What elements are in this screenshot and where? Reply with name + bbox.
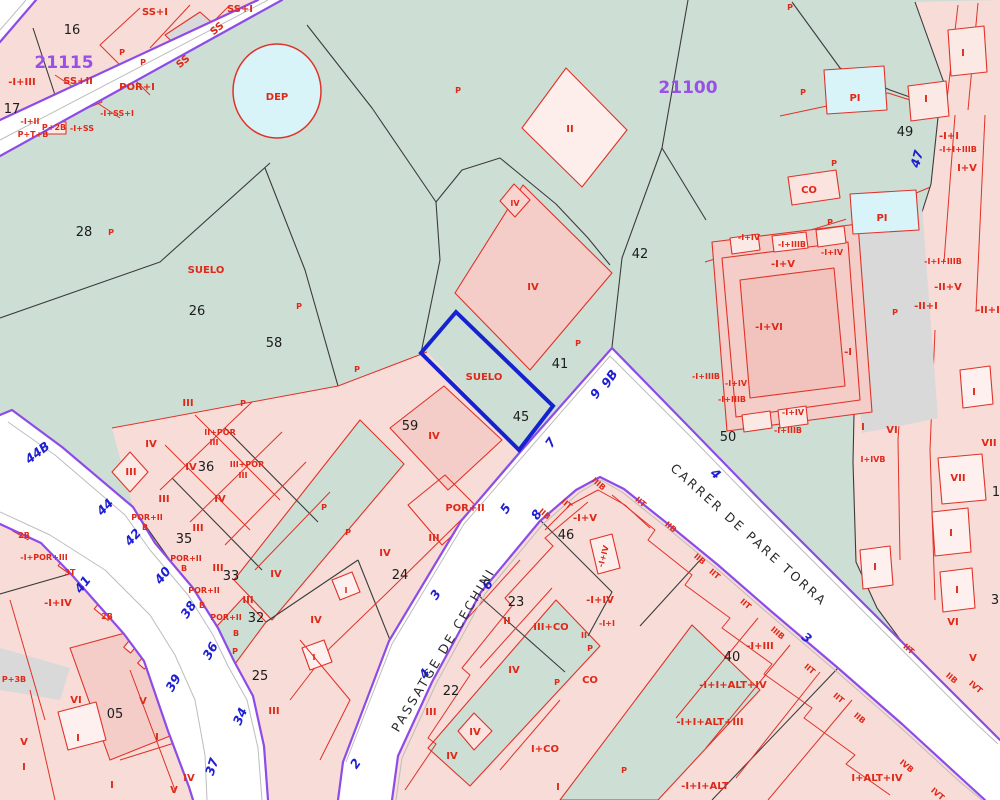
pool-2 (850, 190, 919, 234)
map-label: 28 (76, 225, 93, 240)
map-label: P (321, 503, 327, 512)
map-label: P (621, 766, 627, 775)
deposit-circle (233, 44, 321, 138)
map-label: VI (947, 617, 958, 628)
map-label: 3T (64, 568, 76, 577)
map-label: POR+II (210, 613, 242, 622)
map-label: POR+I (119, 82, 155, 93)
map-label: P (892, 308, 898, 317)
map-label: II (503, 616, 510, 627)
map-label: IV (185, 462, 197, 473)
map-label: PI (876, 213, 887, 224)
map-label: -I+V (771, 259, 795, 270)
map-label: III (425, 707, 436, 718)
map-label: IV (469, 727, 481, 738)
map-label: III+POR (230, 460, 264, 469)
map-label: SS+I (227, 4, 253, 15)
map-label: 05 (107, 707, 124, 722)
map-label: III (268, 706, 279, 717)
map-label: III (125, 467, 136, 478)
map-label: 26 (189, 304, 206, 319)
map-label: -I+III (8, 77, 35, 88)
map-label: P (108, 228, 114, 237)
map-label: CO (801, 185, 817, 196)
map-label: IV (446, 751, 458, 762)
map-label: 41 (552, 357, 569, 372)
map-label: I (313, 653, 316, 662)
map-label: 17 (4, 102, 21, 117)
map-label: I (955, 585, 959, 596)
map-label: IV (527, 282, 539, 293)
map-label: -I+I+ALT (681, 781, 729, 792)
map-label: 2B (18, 531, 30, 540)
pool-1 (824, 66, 887, 114)
map-label: III (239, 471, 248, 480)
map-label: -I+IIIB (718, 395, 746, 404)
map-label: III+CO (533, 622, 568, 633)
map-label: 46 (558, 528, 575, 543)
map-label: P (554, 678, 560, 687)
map-label: VI (886, 425, 897, 436)
map-label: P (827, 218, 833, 227)
map-label: P+T+B (18, 130, 49, 139)
zone-id-21115: 21115 (34, 53, 93, 73)
map-label: 1 (992, 485, 1000, 500)
map-label: SUELO (188, 265, 225, 276)
map-label: I (949, 528, 953, 539)
map-label: -I+VI (755, 322, 783, 333)
map-label: IV (310, 615, 322, 626)
map-label: B (142, 523, 148, 532)
map-label: P (455, 86, 461, 95)
map-label: V (170, 785, 178, 796)
map-label: II (581, 631, 587, 640)
map-label: 40 (724, 650, 741, 665)
map-label: -I+IV (782, 408, 805, 417)
zone-id-21100: 21100 (658, 78, 717, 98)
map-label: III (428, 533, 439, 544)
map-label: -I+IIIB (692, 372, 720, 381)
map-label: SS+I (142, 7, 168, 18)
map-label: I (345, 586, 348, 595)
map-label: P (345, 528, 351, 537)
map-label: 42 (632, 247, 649, 262)
map-label: VI (70, 695, 81, 706)
map-label: I (861, 422, 865, 433)
map-label: I (924, 94, 928, 105)
map-label: 23 (508, 595, 525, 610)
map-label: P (296, 302, 302, 311)
map-label: -I+SS (70, 124, 94, 133)
map-label: P (354, 365, 360, 374)
map-label: POR+II (131, 513, 163, 522)
map-label: V (139, 696, 147, 707)
map-label: IV (379, 548, 391, 559)
map-label: 58 (266, 336, 283, 351)
map-label: P (240, 399, 246, 408)
map-label: -II+I (976, 305, 1000, 316)
map-label: 2B (101, 612, 113, 621)
map-label: I (556, 782, 560, 793)
map-label: P (800, 88, 806, 97)
map-label: PI (849, 93, 860, 104)
map-label: -I+I+ALT+IV (699, 680, 767, 691)
map-label: 16 (64, 23, 81, 38)
map-label: -I+III (746, 641, 773, 652)
map-label: -I+SS+I (100, 109, 134, 118)
map-label: IV (214, 494, 226, 505)
map-label: 33 (223, 569, 240, 584)
cadastral-map-viewport[interactable]: 1621115-I+IIISS+II17POR+I-I+SS+I-I+IIP+2… (0, 0, 1000, 800)
map-label: -II+V (934, 282, 962, 293)
map-label: -I+IV (821, 248, 844, 257)
map-label: III (192, 523, 203, 534)
map-label: IV (145, 439, 157, 450)
cadastral-map-canvas[interactable]: 1621115-I+IIISS+II17POR+I-I+SS+I-I+IIP+2… (0, 0, 1000, 800)
map-label: 49 (897, 125, 914, 140)
map-label: POR+II (445, 503, 484, 514)
map-label: -I+II (21, 117, 40, 126)
map-label: I+V (957, 163, 977, 174)
map-label: 22 (443, 684, 460, 699)
map-label: I (110, 780, 114, 791)
map-label: VII (981, 438, 996, 449)
map-label: II+POR (204, 428, 235, 437)
map-label: P (587, 644, 593, 653)
map-label: V (20, 737, 28, 748)
map-label: -II+I (914, 301, 938, 312)
map-label: IV (510, 199, 520, 208)
map-label: SS+II (63, 76, 93, 87)
map-label: 24 (392, 568, 409, 583)
map-label: -I+IV (44, 598, 72, 609)
map-label: I (972, 387, 976, 398)
map-label: 32 (248, 611, 265, 626)
map-label: CO (582, 675, 598, 686)
map-label: B (181, 564, 187, 573)
map-label: 3 (991, 593, 999, 608)
highlight-parcel-number: 45 (513, 410, 530, 425)
map-label: 50 (720, 430, 737, 445)
highlight-suelo-label: SUELO (466, 372, 503, 383)
map-label: P (787, 3, 793, 12)
map-label: I+IVB (861, 455, 886, 464)
map-label: II (566, 124, 573, 135)
map-label: I (873, 562, 877, 573)
map-label: -I+V (573, 513, 597, 524)
map-label: -I (844, 347, 852, 358)
map-label: POR+II (188, 586, 220, 595)
map-label: III (242, 595, 253, 606)
map-label: IV (270, 569, 282, 580)
map-label: -I+I (599, 619, 615, 628)
map-label: B (233, 629, 239, 638)
map-label: -I+I (939, 131, 959, 142)
map-label: -I+I+IIIB (939, 145, 977, 154)
map-label: IV (183, 773, 195, 784)
map-label: I (22, 762, 26, 773)
map-label: -I+I+ALT+III (676, 717, 743, 728)
map-label: III (158, 494, 169, 505)
map-label: I+ALT+IV (851, 773, 902, 784)
map-label: P+3B (2, 675, 26, 684)
map-label: -I+IV (586, 595, 614, 606)
map-label: III (182, 398, 193, 409)
map-label: -I+IIIB (778, 240, 806, 249)
map-label: III (210, 438, 219, 447)
map-label: P (232, 647, 238, 656)
map-label: -I+IV (738, 233, 761, 242)
map-label: I (155, 732, 159, 743)
map-label: -I+I+IIIB (924, 257, 962, 266)
map-label: 25 (252, 669, 269, 684)
map-label: IV (428, 431, 440, 442)
map-label: -I+IV (725, 379, 748, 388)
deposit-label: DEP (266, 92, 288, 103)
map-label: -I+POR+III (20, 553, 67, 562)
map-label: P (140, 58, 146, 67)
map-label: V (969, 653, 977, 664)
map-label: I (961, 48, 965, 59)
map-label: IV (508, 665, 520, 676)
map-label: 59 (402, 419, 419, 434)
map-label: P (119, 48, 125, 57)
map-label: VII (950, 473, 965, 484)
map-label: I (76, 733, 80, 744)
map-label: 35 (176, 532, 193, 547)
map-label: B (199, 601, 205, 610)
map-label: POR+II (170, 554, 202, 563)
map-label: P (831, 159, 837, 168)
map-label: I+CO (531, 744, 559, 755)
map-label: P (575, 339, 581, 348)
map-label: 36 (198, 460, 215, 475)
map-label: -I+IIIB (774, 426, 802, 435)
